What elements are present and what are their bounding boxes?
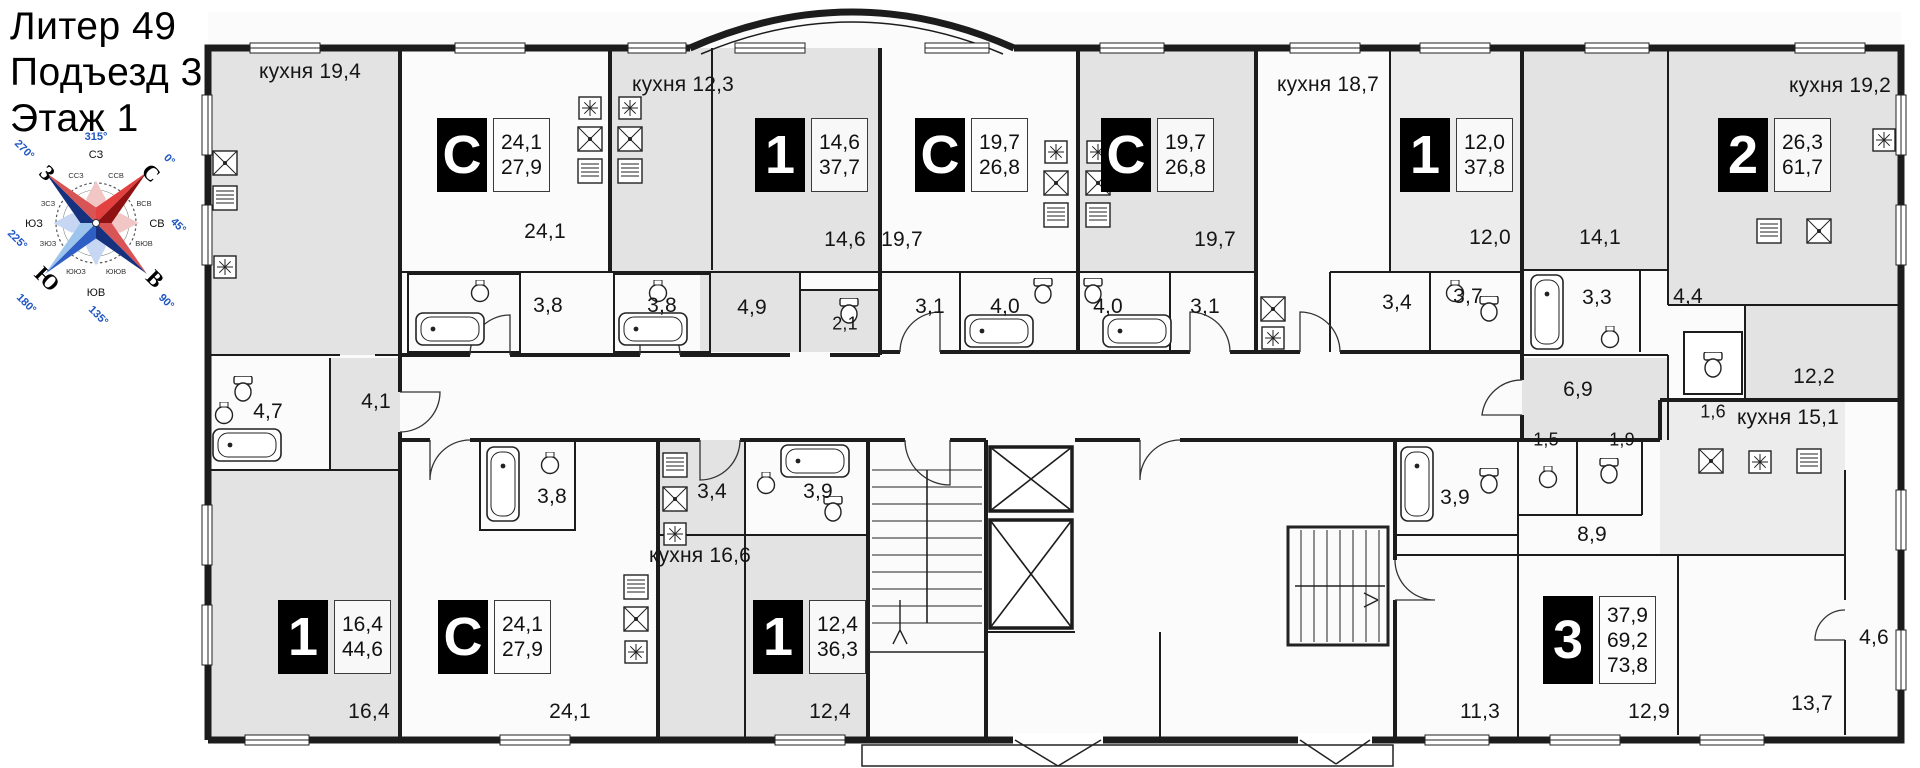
- wc-area: 1,6: [1700, 402, 1726, 423]
- hall-area: 8,9: [1577, 523, 1607, 547]
- unit-living-area: 24,1: [501, 130, 542, 155]
- unit-badge-studio-4: С 24,127,9: [438, 600, 551, 674]
- unit-living-area: 16,4: [342, 612, 383, 637]
- room-area: 14,1: [1579, 226, 1621, 250]
- compass-minor-ese: ВЮВ: [135, 239, 153, 248]
- unit-total-area-with-balcony: 73,8: [1607, 653, 1648, 678]
- compass-nw-label: СЗ: [89, 149, 104, 161]
- unit-living-area: 37,9: [1607, 603, 1648, 628]
- room-area: 19,7: [881, 228, 923, 252]
- compass-rose: С В Ю З 0° 45° 90° 135° 180° 225° 270° 3…: [4, 128, 189, 323]
- unit-badge-studio-2: С 19,726,8: [915, 118, 1028, 192]
- room-area: 19,7: [1194, 228, 1236, 252]
- entrance-title: Подъезд 3: [10, 50, 203, 96]
- room-area: 16,4: [348, 700, 390, 724]
- bath-area: 4,7: [253, 400, 283, 424]
- room-area: 12,2: [1793, 365, 1835, 389]
- kitchen-label: кухня 19,2: [1789, 74, 1891, 98]
- compass-deg-0: 0°: [161, 152, 177, 168]
- unit-type: С: [438, 600, 488, 674]
- hall-area: 3,1: [915, 295, 945, 319]
- compass-deg-225: 225°: [5, 228, 30, 253]
- compass-deg-270: 270°: [12, 138, 37, 163]
- balcony-area: 4,6: [1859, 626, 1889, 650]
- bath-area: 3,8: [647, 294, 677, 318]
- kitchen-label: кухня 19,4: [259, 60, 361, 84]
- unit-total-area: 37,8: [1464, 155, 1505, 180]
- hall-area: 4,4: [1673, 285, 1703, 309]
- wc-area: 2,1: [832, 314, 858, 335]
- elevator-shafts: [990, 447, 1072, 628]
- unit-total-area: 69,2: [1607, 628, 1648, 653]
- hall-area: 3,4: [1382, 291, 1412, 315]
- wc-area: 1,5: [1533, 430, 1559, 451]
- compass-deg-90: 90°: [156, 292, 176, 312]
- unit-living-area: 26,3: [1782, 130, 1823, 155]
- bath-area: 3,7: [1453, 285, 1483, 309]
- bath-area: 3,3: [1582, 286, 1612, 310]
- floorplan-canvas: Литер 49 Подъезд 3 Этаж 1: [0, 0, 1920, 768]
- compass-ne-label: СВ: [149, 218, 164, 230]
- compass-sw-label: ЮЗ: [25, 218, 43, 230]
- unit-type: 1: [755, 118, 805, 192]
- hall-area: 4,9: [737, 296, 767, 320]
- compass-minor-ene: ВСВ: [136, 199, 151, 208]
- unit-badge-1room-3: 1 16,444,6: [278, 600, 391, 674]
- unit-living-area: 19,7: [1165, 130, 1206, 155]
- unit-badge-1room-1: 1 14,637,7: [755, 118, 868, 192]
- unit-total-area: 61,7: [1782, 155, 1823, 180]
- unit-type: 3: [1543, 596, 1593, 684]
- wc-area: 1,9: [1609, 430, 1635, 451]
- unit-total-area: 26,8: [979, 155, 1020, 180]
- unit-type: 1: [1400, 118, 1450, 192]
- room-area: 24,1: [549, 700, 591, 724]
- room-area: 12,0: [1469, 226, 1511, 250]
- unit-total-area: 27,9: [501, 155, 542, 180]
- compass-deg-135: 135°: [86, 304, 111, 323]
- bath-area: 3,8: [537, 485, 567, 509]
- compass-se-label: ЮВ: [87, 287, 105, 299]
- compass-minor-wsw: ЗЮЗ: [40, 239, 57, 248]
- unit-badge-1room-4: 1 12,436,3: [753, 600, 866, 674]
- unit-living-area: 24,1: [502, 612, 543, 637]
- unit-total-area: 37,7: [819, 155, 860, 180]
- bath-area: 4,0: [990, 295, 1020, 319]
- compass-minor-wnw: ЗСЗ: [41, 199, 56, 208]
- compass-south-label: Ю: [30, 261, 65, 296]
- unit-type: С: [915, 118, 965, 192]
- bath-area: 3,8: [533, 294, 563, 318]
- compass-east-label: В: [141, 265, 169, 293]
- room-area: 12,4: [809, 700, 851, 724]
- hall-area: 3,4: [697, 480, 727, 504]
- compass-deg-180: 180°: [14, 292, 39, 317]
- compass-minor-nnw: ССЗ: [68, 171, 84, 180]
- hall-area: 4,1: [361, 390, 391, 414]
- room-area: 11,3: [1460, 700, 1500, 724]
- room-area: 14,6: [824, 228, 866, 252]
- unit-living-area: 12,0: [1464, 130, 1505, 155]
- bath-area: 3,9: [1440, 486, 1470, 510]
- compass-deg-45: 45°: [168, 216, 188, 236]
- kitchen-label: кухня 12,3: [632, 73, 734, 97]
- bath-area: 4,0: [1093, 295, 1123, 319]
- unit-badge-3room: 3 37,969,273,8: [1543, 596, 1656, 684]
- hall-area: 3,1: [1190, 295, 1220, 319]
- room-area: 12,9: [1628, 700, 1670, 724]
- unit-living-area: 19,7: [979, 130, 1020, 155]
- unit-living-area: 12,4: [817, 612, 858, 637]
- unit-badge-2room: 2 26,361,7: [1718, 118, 1831, 192]
- hall-area: 6,9: [1563, 378, 1593, 402]
- compass-minor-nne: ССВ: [108, 171, 124, 180]
- unit-type: 1: [753, 600, 803, 674]
- compass-deg-315: 315°: [85, 131, 108, 143]
- unit-badge-studio-1: С 24,127,9: [437, 118, 550, 192]
- room-area: 24,1: [524, 220, 566, 244]
- compass-minor-sse: ЮЮВ: [106, 267, 126, 276]
- unit-living-area: 14,6: [819, 130, 860, 155]
- unit-total-area: 26,8: [1165, 155, 1206, 180]
- room-area: 13,7: [1791, 692, 1833, 716]
- unit-type: 1: [278, 600, 328, 674]
- unit-total-area: 44,6: [342, 637, 383, 662]
- compass-north-label: С: [137, 158, 166, 187]
- kitchen-label: кухня 18,7: [1277, 73, 1379, 97]
- unit-badge-studio-3: С 19,726,8: [1101, 118, 1214, 192]
- unit-type: С: [1101, 118, 1151, 192]
- kitchen-label: кухня 16,6: [649, 544, 751, 568]
- unit-total-area: 36,3: [817, 637, 858, 662]
- building-title: Литер 49: [10, 4, 203, 50]
- bath-area: 3,9: [803, 480, 833, 504]
- unit-type: С: [437, 118, 487, 192]
- compass-minor-ssw: ЮЮЗ: [66, 267, 86, 276]
- unit-type: 2: [1718, 118, 1768, 192]
- unit-total-area: 27,9: [502, 637, 543, 662]
- kitchen-label: кухня 15,1: [1737, 406, 1839, 430]
- unit-badge-1room-2: 1 12,037,8: [1400, 118, 1513, 192]
- plan-header: Литер 49 Подъезд 3 Этаж 1: [10, 4, 203, 142]
